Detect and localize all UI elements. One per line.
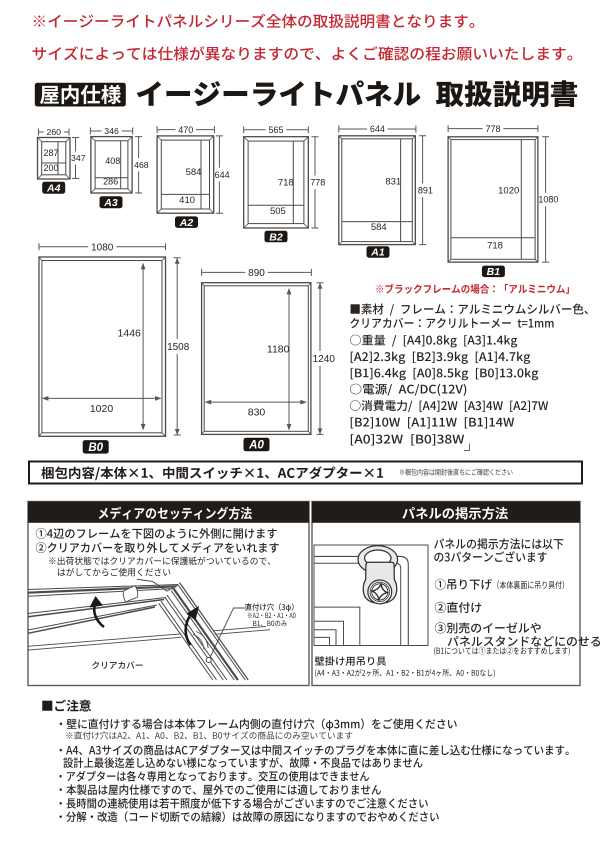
svg-text:A4: A4 (46, 182, 61, 194)
svg-text:A0: A0 (248, 440, 264, 452)
svg-text:B2: B2 (269, 231, 283, 243)
svg-text:830: 830 (248, 407, 266, 419)
svg-text:778: 778 (310, 178, 325, 188)
svg-text:1180: 1180 (267, 343, 290, 355)
svg-text:A2: A2 (179, 217, 194, 229)
svg-text:505: 505 (270, 206, 286, 217)
svg-text:200: 200 (43, 163, 58, 173)
svg-text:347: 347 (71, 153, 86, 163)
svg-text:1080: 1080 (91, 242, 114, 253)
svg-text:1020: 1020 (90, 403, 114, 415)
svg-text:286: 286 (103, 177, 118, 187)
svg-text:287: 287 (43, 148, 58, 158)
svg-text:408: 408 (105, 156, 120, 166)
svg-text:584: 584 (186, 167, 202, 178)
svg-text:346: 346 (104, 126, 119, 136)
svg-text:A1: A1 (370, 247, 385, 259)
svg-text:644: 644 (370, 124, 385, 134)
svg-text:1020: 1020 (498, 185, 519, 196)
svg-text:A3: A3 (103, 197, 118, 209)
svg-text:410: 410 (179, 195, 195, 206)
svg-text:470: 470 (178, 125, 193, 135)
svg-text:778: 778 (485, 124, 500, 134)
svg-text:565: 565 (268, 125, 283, 135)
svg-text:1446: 1446 (118, 328, 142, 340)
svg-text:260: 260 (47, 127, 62, 137)
svg-text:1240: 1240 (313, 354, 336, 365)
svg-text:718: 718 (487, 240, 503, 251)
svg-text:891: 891 (418, 185, 433, 195)
svg-text:B1: B1 (487, 266, 501, 278)
svg-text:1080: 1080 (538, 195, 558, 205)
svg-text:718: 718 (278, 178, 294, 189)
svg-text:468: 468 (134, 160, 149, 170)
svg-text:890: 890 (248, 268, 265, 279)
svg-text:584: 584 (371, 222, 387, 233)
svg-text:B0: B0 (88, 442, 103, 454)
svg-text:644: 644 (215, 170, 230, 180)
svg-text:831: 831 (385, 177, 401, 188)
svg-text:1508: 1508 (167, 342, 190, 353)
